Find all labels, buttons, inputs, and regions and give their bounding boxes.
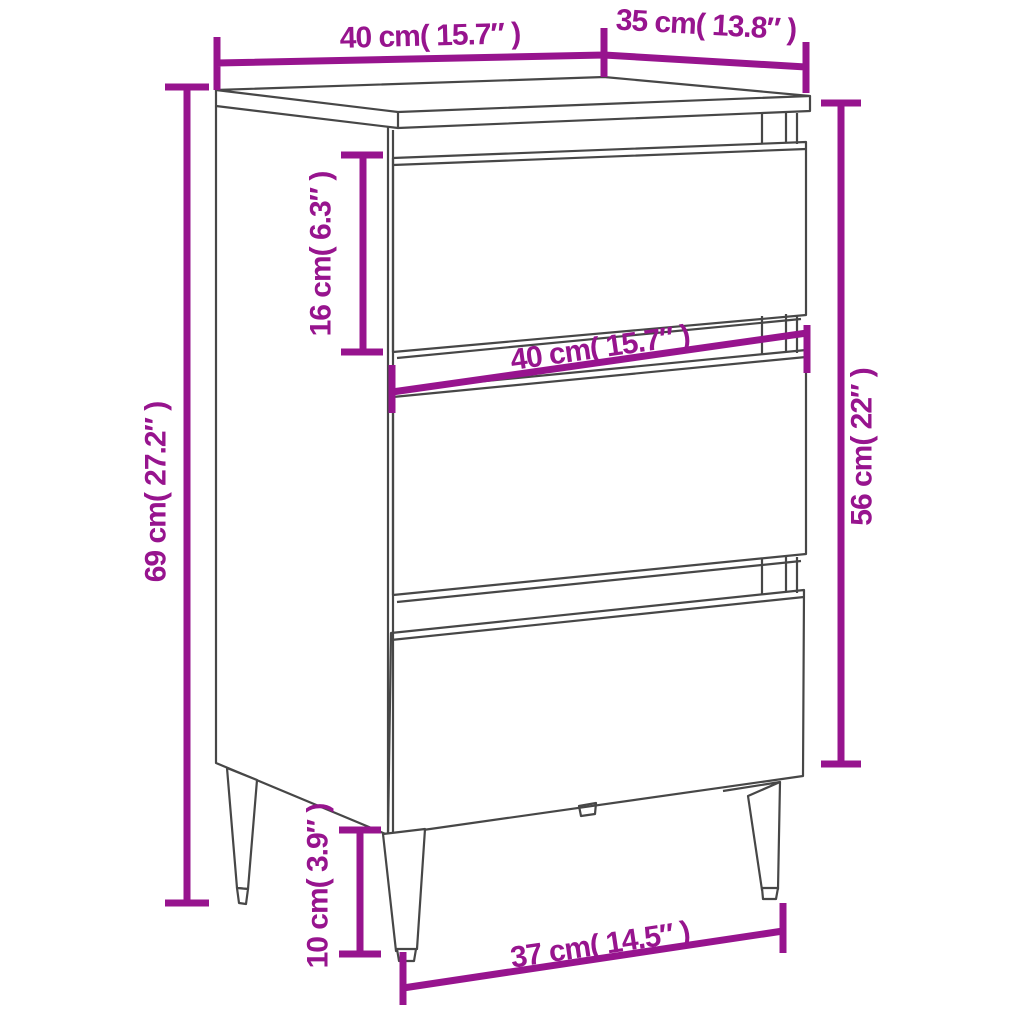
dim-body-height-label: 56 cm( 22″ ) (846, 368, 879, 525)
dimension-diagram: 40 cm( 15.7″ ) 35 cm( 13.8″ ) 69 cm( 27.… (0, 0, 1024, 1024)
dim-feet-span-label: 37 cm( 14.5″ ) (508, 915, 691, 974)
dim-leg-height-line (339, 830, 381, 954)
cabinet-top-slab-edges (216, 90, 810, 128)
drawer-3-front (388, 590, 804, 835)
dim-drawer-height-line (341, 155, 383, 352)
dim-front-width: 40 cm( 15.7″ ) (392, 319, 807, 413)
drawer-1-bevels (393, 149, 806, 358)
cabinet-dimension-drawing: 40 cm( 15.7″ ) 35 cm( 13.8″ ) 69 cm( 27.… (0, 0, 1024, 1024)
dim-leg-height: 10 cm( 3.9″ ) (302, 804, 382, 969)
dim-front-width-label: 40 cm( 15.7″ ) (508, 319, 691, 377)
cabinet-top-face (216, 77, 810, 112)
dim-leg-height-label: 10 cm( 3.9″ ) (302, 804, 335, 969)
leg-front-right-foot (762, 888, 778, 899)
dim-height-total: 69 cm( 27.2″ ) (140, 87, 210, 903)
dim-body-height: 56 cm( 22″ ) (821, 103, 879, 764)
drawer-2-front (393, 350, 806, 595)
dim-feet-span: 37 cm( 14.5″ ) (403, 903, 783, 1005)
leg-front-right (748, 782, 780, 890)
leg-front-left (383, 829, 425, 951)
dim-top-depth-label: 35 cm( 13.8″ ) (615, 3, 797, 46)
drawer-1-front (393, 142, 806, 352)
drawer-2-bevels (393, 357, 806, 602)
dim-drawer-height-label: 16 cm( 6.3″ ) (305, 172, 338, 337)
leg-back-left-foot (237, 888, 248, 904)
dim-top-width-label: 40 cm( 15.7″ ) (339, 17, 520, 55)
drawer-3-bevel (391, 597, 804, 640)
leg-back-left (227, 768, 257, 889)
dim-drawer-height: 16 cm( 6.3″ ) (305, 155, 384, 352)
dim-height-total-label: 69 cm( 27.2″ ) (140, 402, 173, 582)
